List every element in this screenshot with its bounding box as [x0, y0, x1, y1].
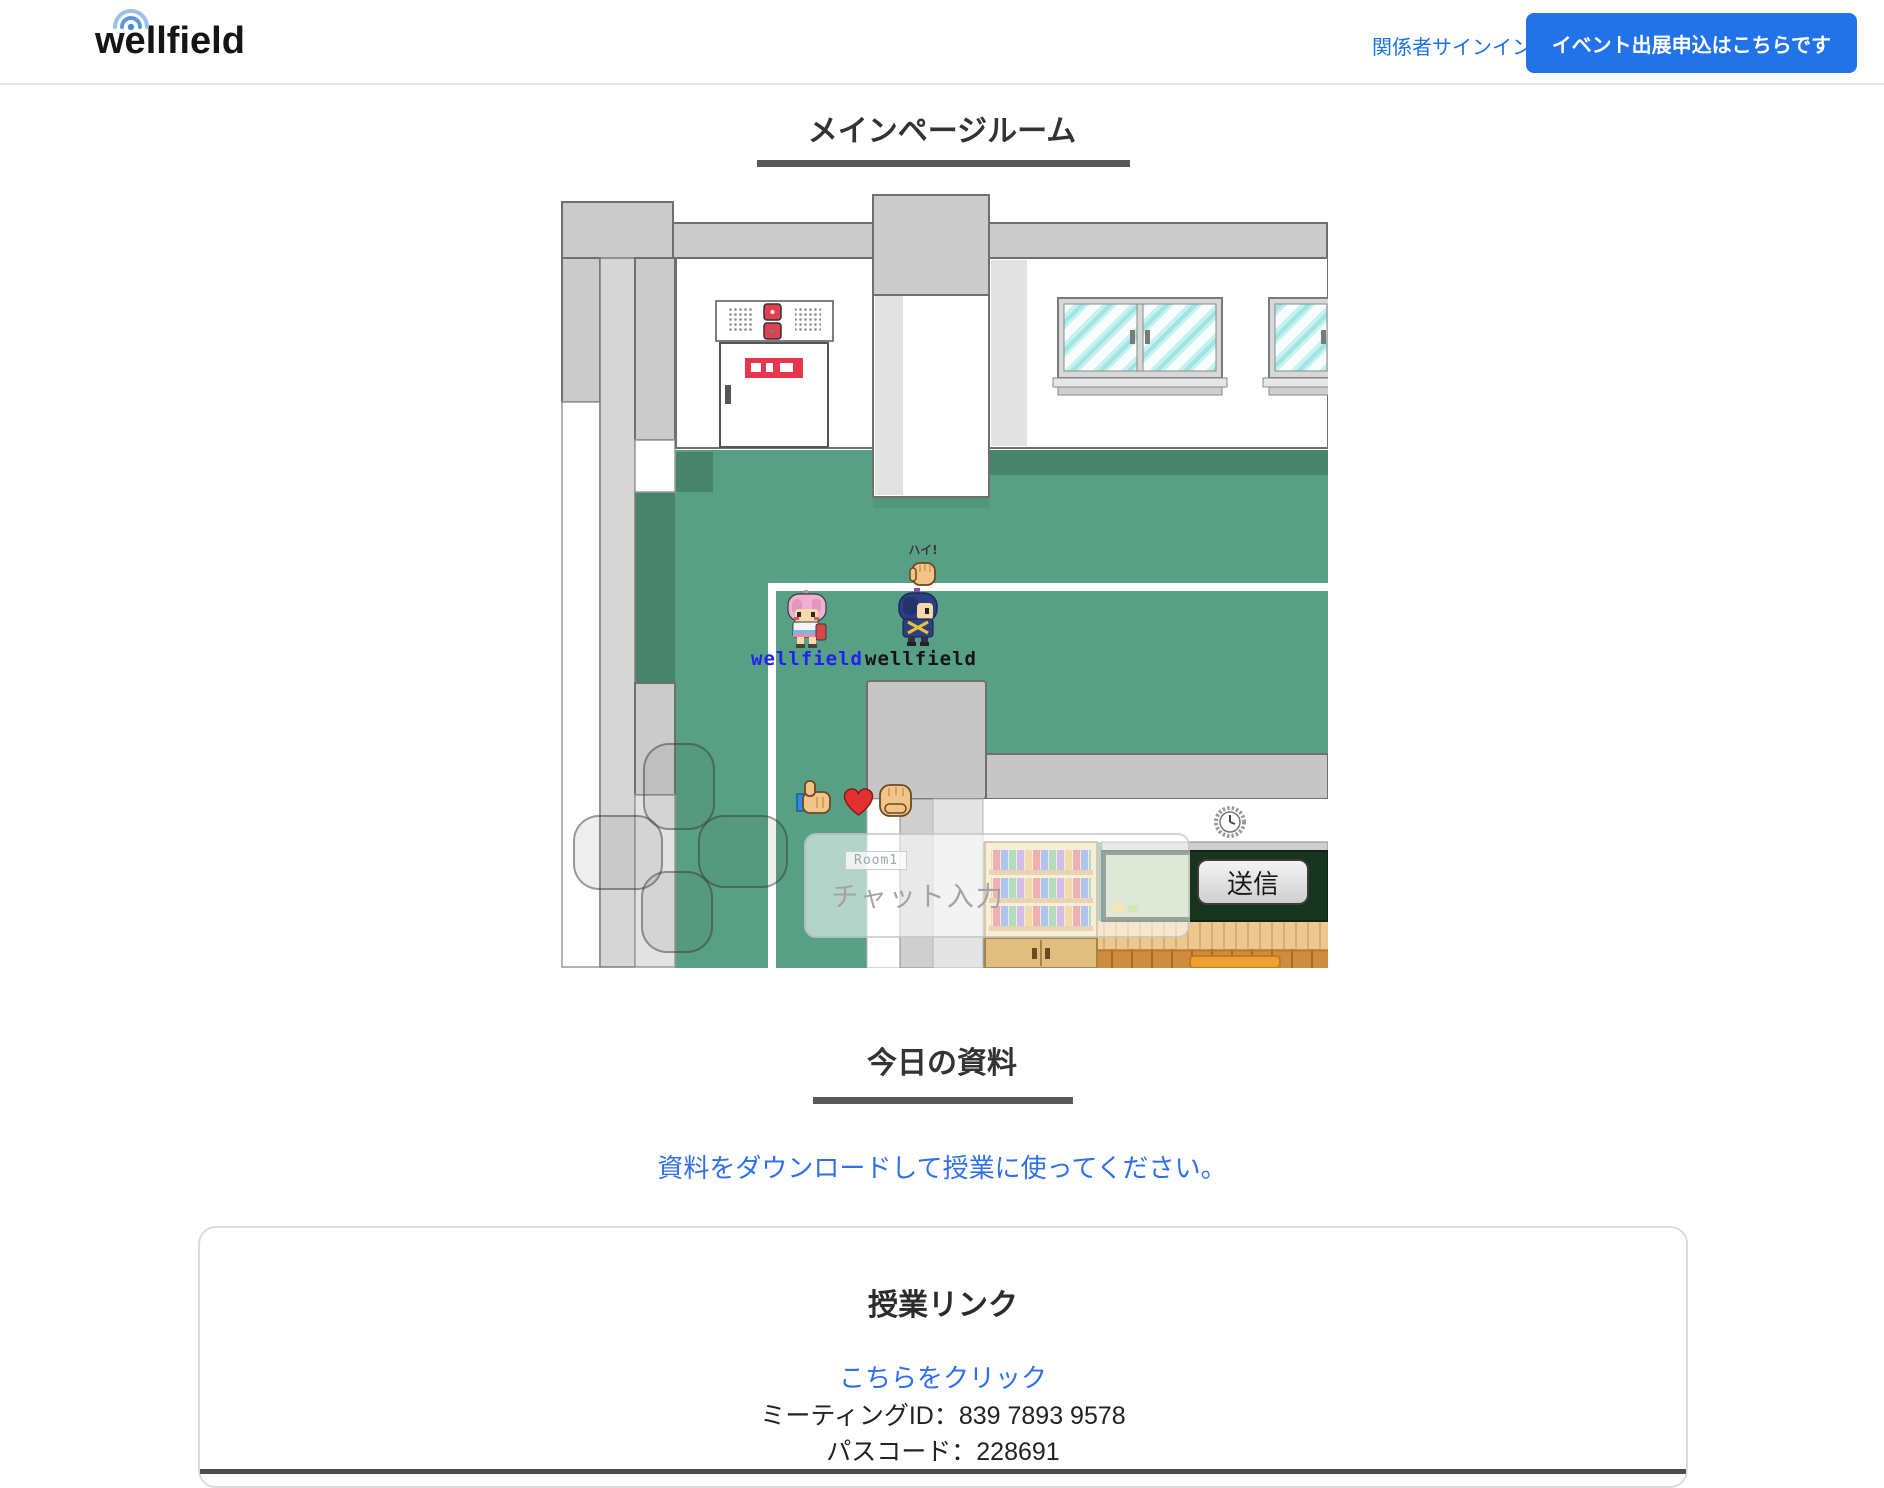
dpad-right-button[interactable] — [698, 815, 788, 888]
dpad-down-button[interactable] — [641, 871, 713, 953]
clock-icon — [1216, 808, 1244, 836]
chat-input[interactable]: チャット入力 — [831, 875, 1005, 914]
dpad-up-button[interactable] — [643, 743, 715, 830]
meeting-id-value: 839 7893 9578 — [959, 1402, 1126, 1430]
player1-name-label: wellfield — [751, 648, 863, 670]
event-apply-button[interactable]: イベント出展申込はこちらです — [1526, 13, 1857, 73]
mid-hallway — [873, 195, 989, 497]
passcode-value: 228691 — [976, 1438, 1059, 1466]
wave-emote-text: ハイ! — [908, 543, 937, 557]
cabinet — [985, 938, 1097, 968]
right-wall — [989, 258, 1328, 448]
player2-name-label: wellfield — [865, 648, 977, 670]
wifi-arcs-icon — [109, 4, 153, 30]
send-button[interactable]: 送信 — [1197, 859, 1309, 905]
header: wellfield 関係者サインイン イベント出展申込はこちらです — [0, 0, 1884, 85]
elevator-room — [676, 258, 873, 448]
logo[interactable]: wellfield — [95, 20, 245, 63]
game-canvas[interactable]: ハイ! — [553, 162, 1328, 968]
fist-emote[interactable] — [880, 785, 911, 816]
materials-underline — [813, 1097, 1073, 1104]
passcode-line: パスコード：228691 — [200, 1432, 1686, 1468]
passcode-label: パスコード： — [826, 1438, 976, 1466]
click-here-link[interactable]: こちらをクリック — [200, 1358, 1686, 1395]
window-1 — [1053, 298, 1227, 395]
meeting-id-line: ミーティングID：839 7893 9578 — [200, 1396, 1686, 1432]
card-divider — [200, 1469, 1686, 1474]
page-title: メインページルーム — [0, 106, 1884, 150]
class-link-card: 授業リンク こちらをクリック ミーティングID：839 7893 9578 パス… — [198, 1226, 1688, 1488]
signin-link[interactable]: 関係者サインイン — [1372, 31, 1532, 60]
materials-title: 今日の資料 — [0, 1038, 1884, 1082]
orange-table — [1190, 956, 1280, 968]
materials-download-link[interactable]: 資料をダウンロードして授業に使ってください。 — [0, 1148, 1884, 1185]
meeting-id-label: ミーティングID： — [760, 1402, 959, 1430]
chat-input-bar[interactable]: Room1 チャット入力 — [804, 833, 1190, 938]
card-title: 授業リンク — [200, 1280, 1686, 1324]
title-underline — [757, 160, 1130, 167]
window-2 — [1263, 298, 1328, 395]
room-badge: Room1 — [845, 851, 907, 870]
avatar-blue[interactable] — [899, 588, 937, 646]
